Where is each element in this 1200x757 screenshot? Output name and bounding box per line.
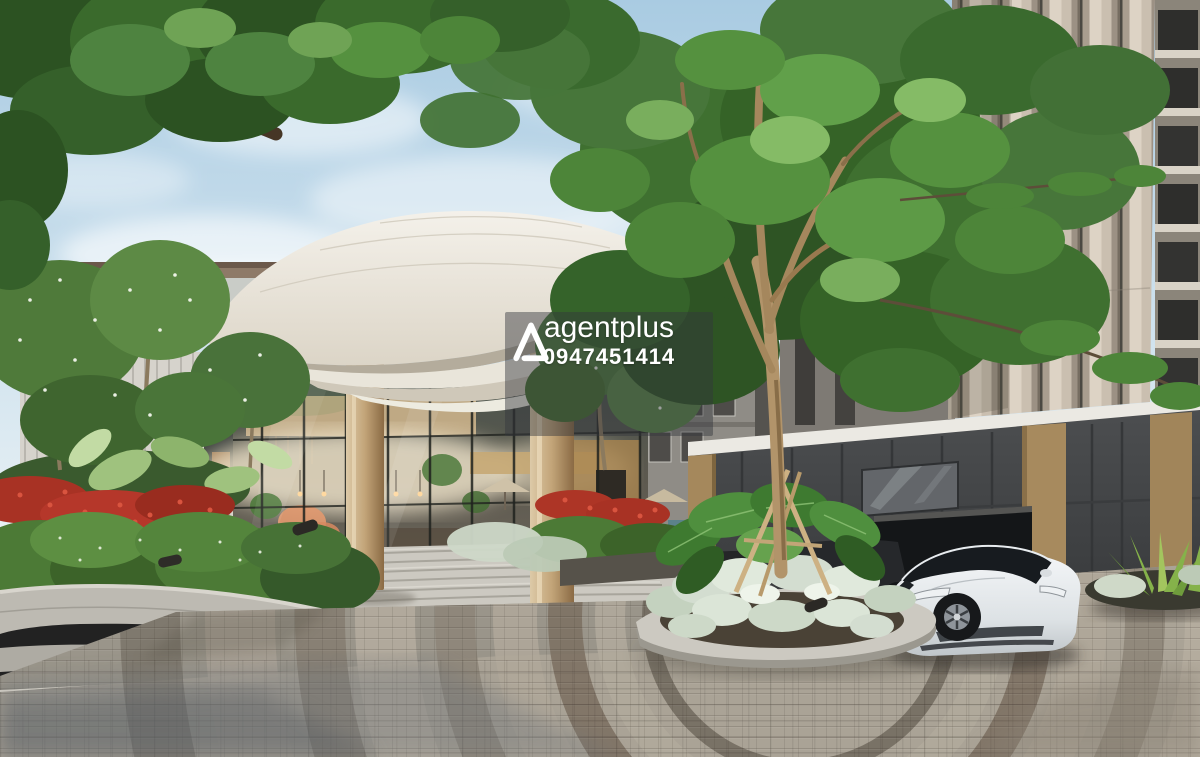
watermark: agentplus 0947451414 [505, 312, 713, 436]
architectural-rendering: agentplus 0947451414 [0, 0, 1200, 757]
agentplus-triangle-logo [505, 318, 557, 364]
watermark-brand: agentplus [544, 312, 674, 344]
watermark-phone: 0947451414 [543, 344, 675, 370]
tower-balcony-column [1155, 0, 1200, 410]
